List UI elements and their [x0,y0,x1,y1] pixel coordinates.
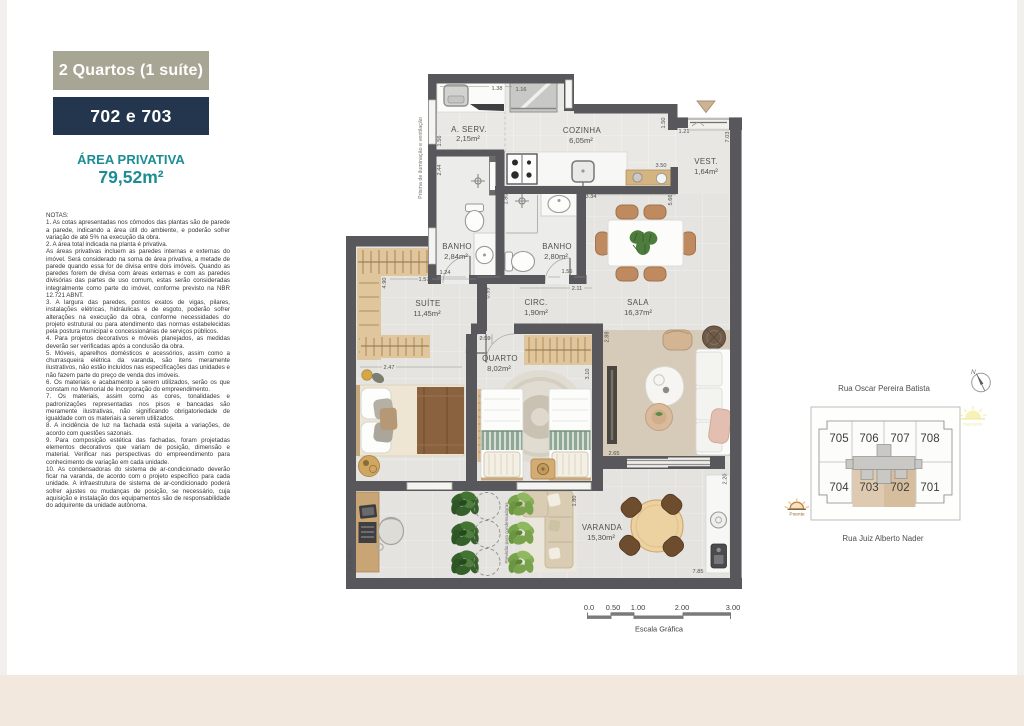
svg-text:Poente: Poente [789,512,805,518]
svg-text:h=1,80m: h=1,80m [348,548,354,570]
svg-text:CIRC.: CIRC. [525,298,548,307]
svg-text:2.59: 2.59 [480,336,491,342]
svg-text:VARANDA: VARANDA [582,523,623,532]
svg-text:3.10: 3.10 [585,369,591,380]
svg-text:702: 702 [890,482,909,494]
svg-text:2.65: 2.65 [609,451,620,457]
svg-text:2.00: 2.00 [675,603,689,612]
svg-text:1.57: 1.57 [419,277,430,283]
svg-text:BANHO: BANHO [442,242,472,251]
svg-text:1.56: 1.56 [562,269,573,275]
svg-text:11,45m²: 11,45m² [413,309,441,318]
svg-text:8,02m²: 8,02m² [487,364,511,373]
svg-text:2.88: 2.88 [605,332,611,343]
svg-text:1.00: 1.00 [631,603,645,612]
svg-text:708: 708 [920,433,939,445]
svg-text:Rua Oscar Pereira Batista: Rua Oscar Pereira Batista [838,384,930,393]
svg-text:705: 705 [829,433,848,445]
svg-text:0.50: 0.50 [606,603,620,612]
svg-text:7.85: 7.85 [693,569,704,575]
svg-text:COZINHA: COZINHA [563,126,602,135]
svg-text:4.90: 4.90 [382,278,388,289]
svg-text:3.50: 3.50 [656,163,667,169]
svg-text:Escala Gráfica: Escala Gráfica [635,625,684,634]
svg-text:1.38: 1.38 [492,86,503,92]
svg-text:706: 706 [859,433,878,445]
svg-text:7.03: 7.03 [725,132,731,143]
svg-text:3.00: 3.00 [726,603,740,612]
svg-text:5.66: 5.66 [668,195,674,206]
svg-text:2.44: 2.44 [437,165,443,176]
svg-text:Prisma de iluminação e ventila: Prisma de iluminação e ventilação [418,117,424,199]
svg-text:BANHO: BANHO [542,242,572,251]
svg-text:2,15m²: 2,15m² [456,134,480,143]
svg-text:Nascente: Nascente [963,422,983,427]
svg-text:1.80: 1.80 [572,496,578,507]
svg-text:1.16: 1.16 [516,87,527,93]
svg-text:0.99: 0.99 [486,288,492,299]
svg-text:2,80m²: 2,80m² [544,252,568,261]
svg-text:704: 704 [829,482,849,494]
svg-text:16,37m²: 16,37m² [624,308,652,317]
svg-text:SALA: SALA [627,298,649,307]
svg-text:0.0: 0.0 [584,603,594,612]
svg-text:1,64m²: 1,64m² [694,167,718,176]
svg-text:6,05m²: 6,05m² [569,136,593,145]
svg-text:15,30m²: 15,30m² [587,533,615,542]
svg-text:QUARTO: QUARTO [482,354,518,363]
svg-text:707: 707 [890,433,909,445]
svg-text:1,90m²: 1,90m² [524,308,548,317]
svg-text:1.50: 1.50 [661,118,667,129]
svg-text:1.24: 1.24 [440,270,451,276]
svg-text:A. SERV.: A. SERV. [451,125,487,134]
svg-text:Rua Juiz Alberto Nader: Rua Juiz Alberto Nader [842,534,924,543]
svg-text:703: 703 [859,482,878,494]
svg-text:SUÍTE: SUÍTE [415,299,440,308]
svg-text:2.20: 2.20 [723,474,729,485]
svg-text:VEST.: VEST. [694,157,717,166]
svg-text:1.21: 1.21 [679,129,690,135]
svg-text:Previsão para condensadoras: Previsão para condensadoras [504,502,509,564]
svg-text:1.80: 1.80 [504,194,510,205]
svg-text:1.56: 1.56 [437,136,443,147]
svg-text:2.11: 2.11 [572,286,582,292]
svg-text:2.47: 2.47 [384,365,395,371]
svg-text:2,84m²: 2,84m² [444,252,468,261]
svg-text:701: 701 [920,482,939,494]
